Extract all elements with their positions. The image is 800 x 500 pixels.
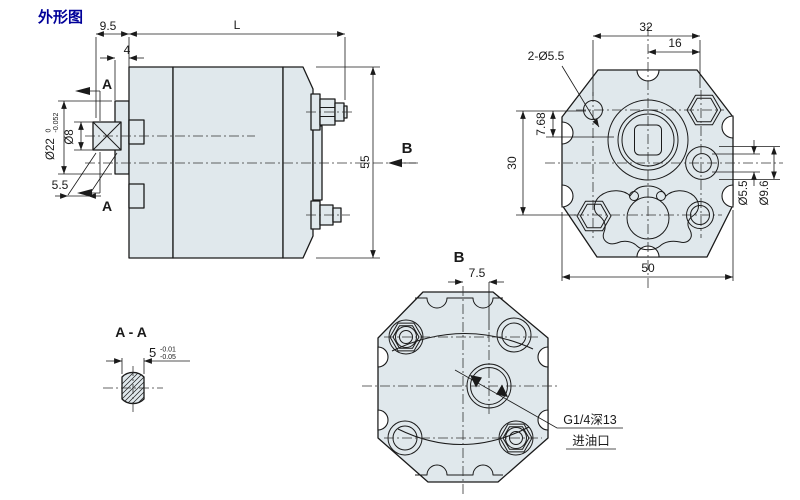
view-b-arrow	[388, 159, 402, 167]
dim-5: 5	[149, 345, 156, 360]
mount-lug-bottom	[129, 184, 144, 208]
dim-5-tol-upper: -0.01	[160, 347, 176, 354]
port-name-label: 进油口	[572, 434, 610, 448]
dim-32: 32	[639, 20, 653, 34]
cbore-dia-label: Ø9.6	[759, 181, 771, 206]
dim-16: 16	[668, 36, 682, 50]
port-thread-label: G1/4深13	[563, 413, 617, 427]
dim-length: L	[234, 18, 241, 32]
drawing-sheet: 外形图	[0, 0, 800, 500]
dim-7-68: 7.68	[534, 112, 548, 136]
hole-dia-label: Ø5.5	[738, 181, 750, 206]
pilot-dia: Ø22	[45, 138, 57, 160]
section-aa-dimensions	[106, 358, 190, 374]
front-view: 32 16 2-Ø5.5 7.68 30 Ø5.5 Ø9.6 50	[505, 20, 783, 290]
dim-9-5: 9.5	[100, 19, 117, 33]
view-b-label: B	[454, 249, 465, 266]
side-view: 9.5 4 L 55 5.5 A A B Ø22 0 -0.052 Ø8	[45, 18, 418, 258]
dim-50: 50	[641, 261, 655, 275]
pump-side-body	[93, 67, 347, 258]
pilot-dia-callout: Ø22 0 -0.052	[45, 113, 60, 160]
shaft-dia: Ø8	[64, 129, 76, 144]
section-aa-view: A - A 5 -0.01 -0.05	[100, 324, 190, 412]
pilot-tol-lower: -0.052	[53, 113, 60, 133]
dim-flat-5-5: 5.5	[52, 178, 69, 192]
dim-7-5: 7.5	[469, 266, 486, 280]
dim-55: 55	[358, 155, 372, 169]
dim-30: 30	[505, 156, 519, 170]
pump-housing-side	[173, 67, 283, 258]
front-flange-side	[129, 67, 173, 258]
b-view: B 7.5 G1/4深13 进油口	[362, 249, 623, 496]
section-arrow-top	[75, 87, 90, 95]
section-label-bottom: A	[102, 198, 112, 214]
rear-cover-side	[283, 67, 313, 258]
pilot-tol-upper: 0	[46, 129, 53, 133]
drawing-canvas: 9.5 4 L 55 5.5 A A B Ø22 0 -0.052 Ø8	[0, 0, 800, 500]
dim-5-tol-lower: -0.05	[160, 354, 176, 361]
section-aa-label: A - A	[115, 324, 147, 340]
mount-holes-label: 2-Ø5.5	[528, 49, 565, 63]
dim-4: 4	[124, 43, 131, 57]
mount-lug-top	[129, 120, 144, 144]
view-b-label-side: B	[402, 140, 413, 157]
section-label-top: A	[102, 76, 112, 92]
